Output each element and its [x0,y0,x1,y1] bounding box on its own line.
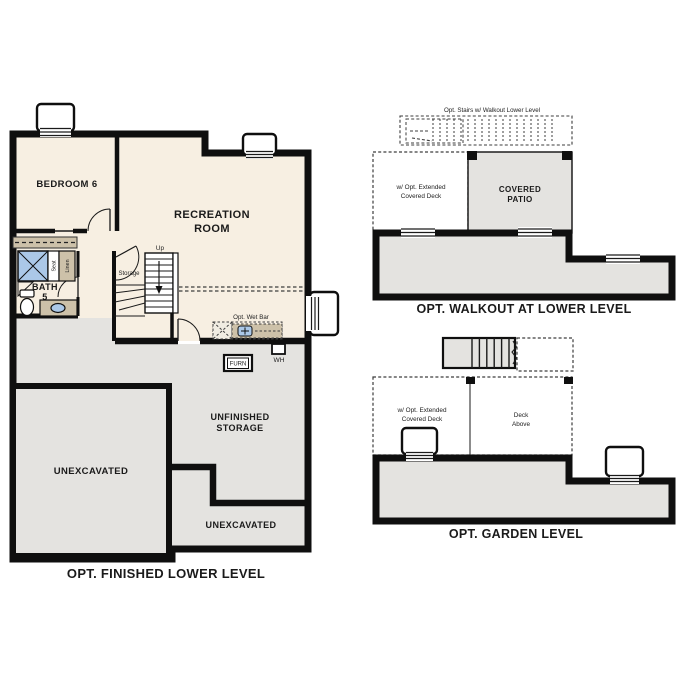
seat-label: Seat [52,260,58,272]
window-well-right [306,292,338,335]
unexcavated-large-label: UNEXCAVATED [54,466,129,477]
wet-bar [213,322,282,339]
walkout-deck-note-line2: Covered Deck [401,193,442,200]
walkout-window-left [401,227,435,238]
patio-post-right [562,151,572,160]
up-label: Up [156,245,165,252]
walkout-stairs-note: Opt. Stairs w/ Walkout Lower Level [444,107,540,114]
water-heater-label: WH [274,357,285,364]
walkout-level-plan: Opt. Stairs w/ Walkout Lower Level w/ Op… [373,107,672,316]
toilet [20,290,34,316]
recreation-label-line1: RECREATION [174,209,250,221]
garden-caption: OPT. GARDEN LEVEL [449,527,583,541]
covered-patio-label-line2: PATIO [507,195,532,204]
patio-post-left [467,151,477,160]
window-well-top-left [37,104,74,137]
shower [18,251,48,281]
walkout-dashed-stairs [400,116,572,145]
unfinished-storage-label-line2: STORAGE [216,423,263,433]
deck-above-label-line2: Above [512,421,531,428]
garden-deck-note-line1: w/ Opt. Extended [396,407,446,414]
floorplan-canvas: Seat Linen Up Storage [0,0,687,687]
deck-above-label-line1: Deck [514,412,529,419]
walkout-house-floor [376,233,672,297]
finished-lower-level-plan: Seat Linen Up Storage [13,104,338,581]
unfinished-storage-label-line1: UNFINISHED [210,412,269,422]
window-well-top-middle [243,134,276,159]
bedroom-label: BEDROOM 6 [36,179,97,190]
garden-deck-post-right [564,377,573,384]
garden-stairs [443,338,517,368]
garden-deck-note-line2: Covered Deck [402,416,443,423]
walkout-window-right [606,253,640,264]
floorplan-page: Seat Linen Up Storage [0,0,687,687]
covered-patio-label-line1: COVERED [499,185,541,194]
bedroom-closet [13,237,77,248]
garden-deck-post-left [466,377,475,384]
recreation-label-line2: ROOM [194,223,230,235]
walkout-deck-note-line1: w/ Opt. Extended [395,184,445,191]
walkout-patio-door [518,227,552,238]
walkout-caption: OPT. WALKOUT AT LOWER LEVEL [416,302,631,316]
linen-label: Linen [65,259,71,272]
garden-window-well-left [402,428,437,461]
finished-lower-level-caption: OPT. FINISHED LOWER LEVEL [67,566,265,581]
garden-level-plan: w/ Opt. Extended Covered Deck Deck Above… [373,338,672,541]
furnace-label: FURN [230,362,247,368]
bath-label-line2: 5 [42,292,47,302]
water-heater [272,344,285,354]
sink [51,304,65,313]
stair-rail [173,253,178,313]
garden-stair-landing-dashed [517,338,573,371]
unexcavated-small-label: UNEXCAVATED [206,520,277,530]
bath-label-line1: BATH [32,282,58,292]
storage-label: Storage [118,271,140,277]
garden-window-well-right [606,447,643,484]
wet-bar-label: Opt. Wet Bar [233,314,269,321]
walkout-extended-deck-outline [373,152,468,231]
vanity [40,300,77,316]
